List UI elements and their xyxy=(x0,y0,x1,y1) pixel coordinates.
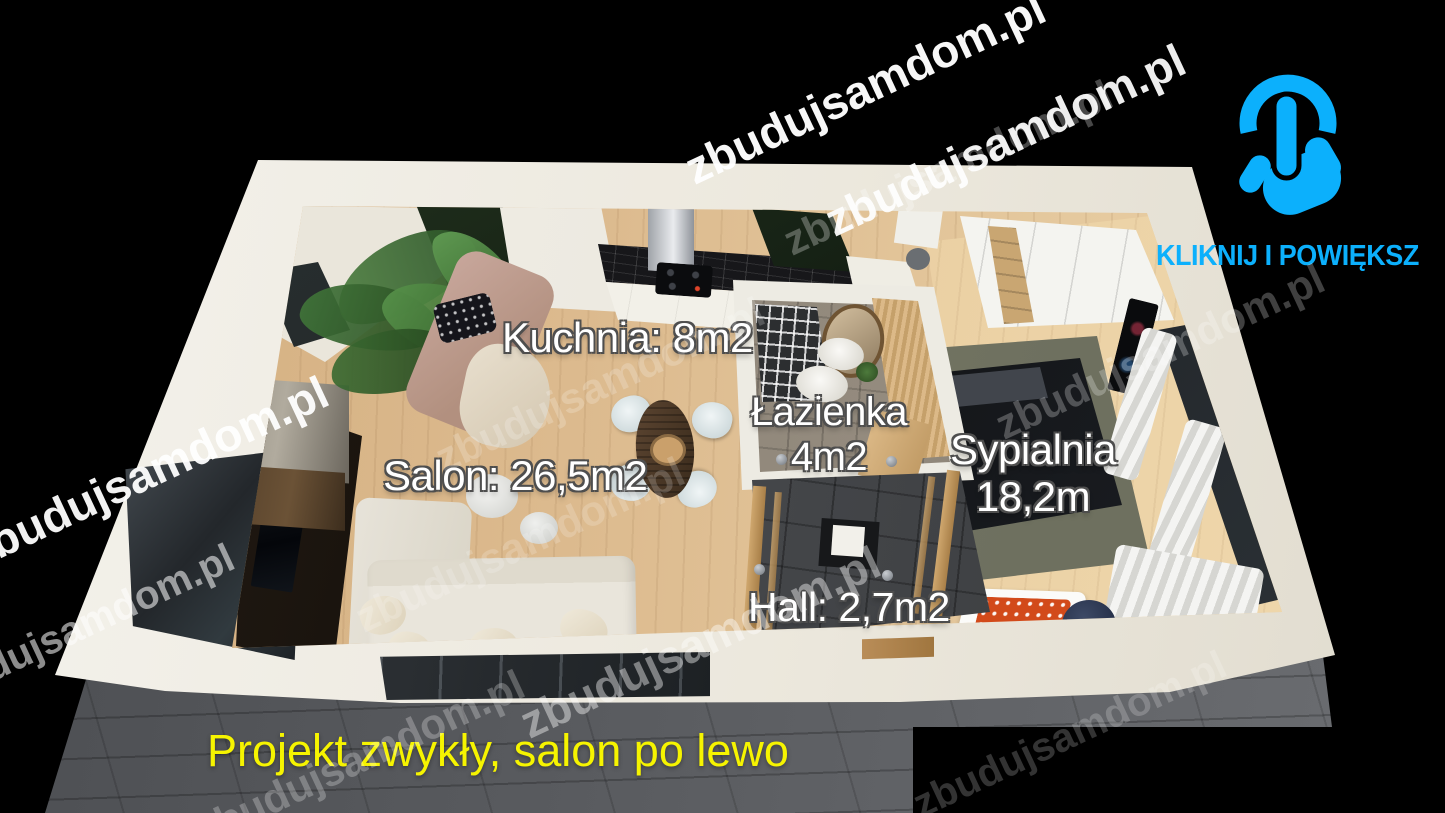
living-room-label: Salon: 26,5m2 xyxy=(383,452,647,500)
desk-chair xyxy=(906,248,930,270)
bathroom-label: Łazienka 4m2 xyxy=(738,390,920,480)
door-handle xyxy=(754,564,765,575)
bedroom-label-name: Sypialnia xyxy=(950,426,1116,473)
bathroom-label-name: Łazienka xyxy=(751,390,907,435)
floorplan-scene: Kuchnia: 8m2 Salon: 26,5m2 Łazienka 4m2 … xyxy=(0,0,1445,813)
bathroom-plant xyxy=(856,362,878,382)
cta-label[interactable]: KLIKNIJ I POWIĘKSZ xyxy=(1156,240,1398,273)
bedroom-label: Sypialnia 18,2m xyxy=(938,426,1128,520)
front-door xyxy=(862,637,934,660)
tap-finger-icon[interactable] xyxy=(1222,66,1354,238)
front-facade-window xyxy=(380,652,710,700)
bathroom-label-area: 4m2 xyxy=(791,435,867,480)
side-table xyxy=(520,512,558,544)
door-handle xyxy=(882,570,893,581)
cooktop xyxy=(655,262,713,298)
table-centerpiece xyxy=(650,434,686,466)
framed-picture xyxy=(831,525,865,557)
hall-label: Hall: 2,7m2 xyxy=(748,584,950,631)
kitchen-label: Kuchnia: 8m2 xyxy=(502,314,753,362)
project-caption: Projekt zwykły, salon po lewo xyxy=(207,725,789,777)
bedroom-label-area: 18,2m xyxy=(976,473,1090,520)
